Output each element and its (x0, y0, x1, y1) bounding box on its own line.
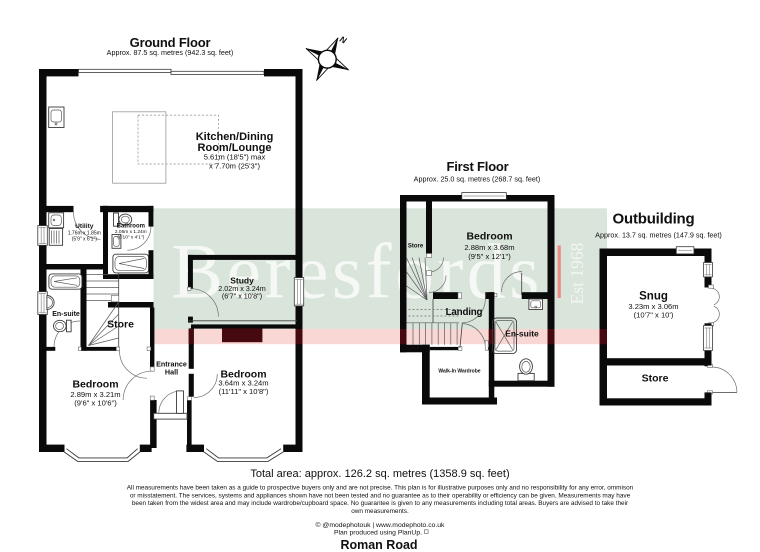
svg-text:2.06m x 1.24m: 2.06m x 1.24m (115, 229, 147, 235)
svg-text:own measurements.: own measurements. (351, 508, 409, 515)
svg-text:3.23m x 3.06m: 3.23m x 3.06m (628, 302, 678, 311)
svg-text:Store: Store (642, 373, 669, 385)
svg-text:Bathroom: Bathroom (117, 224, 145, 230)
svg-text:5.61m (18'5") max: 5.61m (18'5") max (204, 153, 266, 162)
svg-text:(6'10" x 4'1"): (6'10" x 4'1") (117, 235, 144, 241)
svg-text:(9'5" x 12'1"): (9'5" x 12'1") (468, 252, 511, 261)
svg-text:Approx. 25.0 sq. metres (268.7: Approx. 25.0 sq. metres (268.7 sq. feet) (414, 174, 541, 183)
svg-text:Total area: approx. 126.2 sq.: Total area: approx. 126.2 sq. metres (13… (250, 468, 509, 480)
svg-text:Snug: Snug (639, 290, 668, 302)
svg-text:Roman Road: Roman Road (340, 538, 417, 552)
svg-text:(5'9" x 6'1"): (5'9" x 6'1") (72, 236, 98, 242)
svg-text:First Floor: First Floor (446, 159, 508, 174)
svg-text:Est 1968: Est 1968 (567, 242, 587, 304)
svg-text:Bedroom: Bedroom (72, 379, 118, 391)
svg-text:(11'11" x 10'8"): (11'11" x 10'8") (219, 387, 269, 396)
svg-text:© @modephotouk | www.modephoto: © @modephotouk | www.modephoto.co.uk (316, 521, 446, 529)
svg-text:Bedroom: Bedroom (466, 231, 512, 243)
svg-text:En-suite: En-suite (52, 311, 80, 318)
svg-text:Approx. 13.7 sq. metres (147.9: Approx. 13.7 sq. metres (147.9 sq. feet) (595, 231, 722, 240)
svg-text:Approx. 87.5 sq. metres (942.3: Approx. 87.5 sq. metres (942.3 sq. feet) (107, 48, 234, 57)
svg-text:Store: Store (408, 244, 424, 250)
svg-text:Walk-In Wardrobe: Walk-In Wardrobe (438, 368, 480, 374)
svg-text:been taken from the widest are: been taken from the widest area and may … (132, 500, 629, 507)
svg-text:En-suite: En-suite (505, 329, 539, 339)
svg-text:(10'7" x 10'): (10'7" x 10') (634, 311, 674, 320)
svg-text:All measurements have been tak: All measurements have been taken as a gu… (127, 485, 634, 492)
svg-text:or misstatement. The services,: or misstatement. The services, systems a… (130, 492, 631, 499)
svg-text:2.88m x 3.68m: 2.88m x 3.68m (464, 243, 514, 252)
svg-text:Utility: Utility (75, 223, 94, 230)
svg-text:Plan produced using PlanUp.: Plan produced using PlanUp. (334, 529, 422, 536)
svg-text:x 7.70m (25'3"): x 7.70m (25'3") (209, 161, 260, 170)
svg-text:(6'7" x 10'8"): (6'7" x 10'8") (222, 291, 262, 300)
svg-text:Landing: Landing (446, 307, 483, 318)
svg-text:Hall: Hall (165, 368, 178, 377)
svg-text:Outbuilding: Outbuilding (613, 211, 695, 228)
svg-text:(9'6" x 10'6"): (9'6" x 10'6") (74, 398, 117, 407)
svg-text:Store: Store (107, 318, 134, 330)
